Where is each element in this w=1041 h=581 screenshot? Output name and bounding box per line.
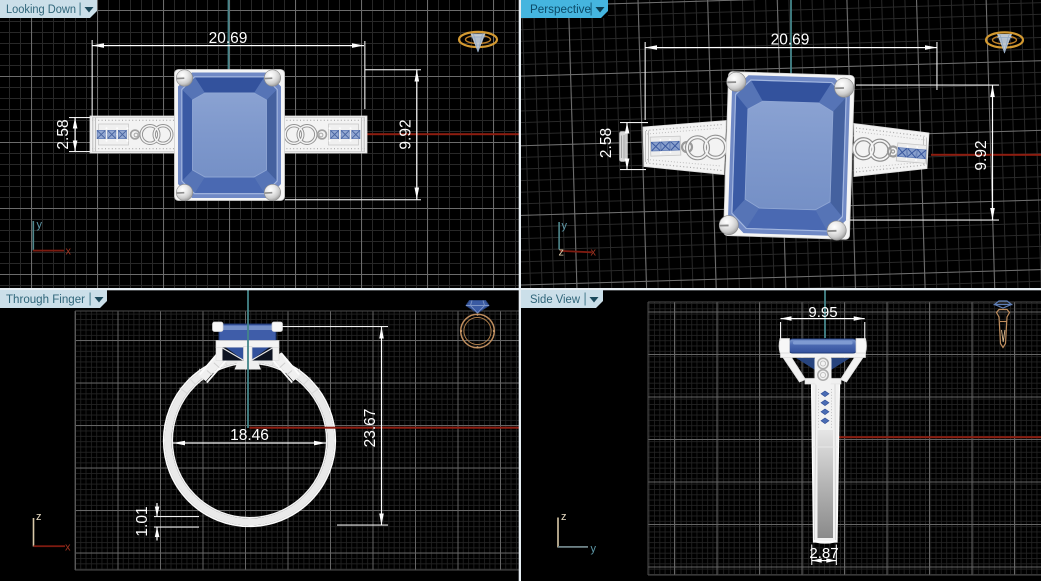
svg-text:18.46: 18.46: [230, 427, 269, 444]
svg-text:20.69: 20.69: [771, 32, 810, 49]
svg-text:x: x: [591, 247, 597, 259]
svg-text:Side View: Side View: [530, 292, 580, 306]
svg-text:y: y: [37, 219, 43, 231]
svg-text:23.67: 23.67: [362, 409, 379, 448]
svg-text:2.58: 2.58: [598, 128, 615, 158]
svg-text:z: z: [561, 511, 567, 523]
svg-text:y: y: [562, 220, 568, 232]
svg-text:z: z: [559, 247, 565, 259]
svg-text:9.92: 9.92: [398, 119, 415, 149]
svg-text:1.01: 1.01: [134, 506, 151, 536]
svg-text:9.92: 9.92: [973, 140, 990, 170]
svg-text:x: x: [66, 246, 72, 258]
svg-text:y: y: [591, 543, 597, 555]
svg-text:9.95: 9.95: [808, 304, 837, 321]
svg-text:Looking Down: Looking Down: [6, 2, 76, 16]
svg-text:2.87: 2.87: [809, 545, 838, 562]
svg-text:2.58: 2.58: [55, 119, 72, 149]
svg-text:Perspective: Perspective: [530, 2, 591, 16]
svg-text:Through Finger: Through Finger: [6, 292, 85, 306]
svg-text:z: z: [36, 511, 42, 523]
svg-text:x: x: [65, 542, 71, 554]
svg-text:20.69: 20.69: [209, 30, 248, 47]
